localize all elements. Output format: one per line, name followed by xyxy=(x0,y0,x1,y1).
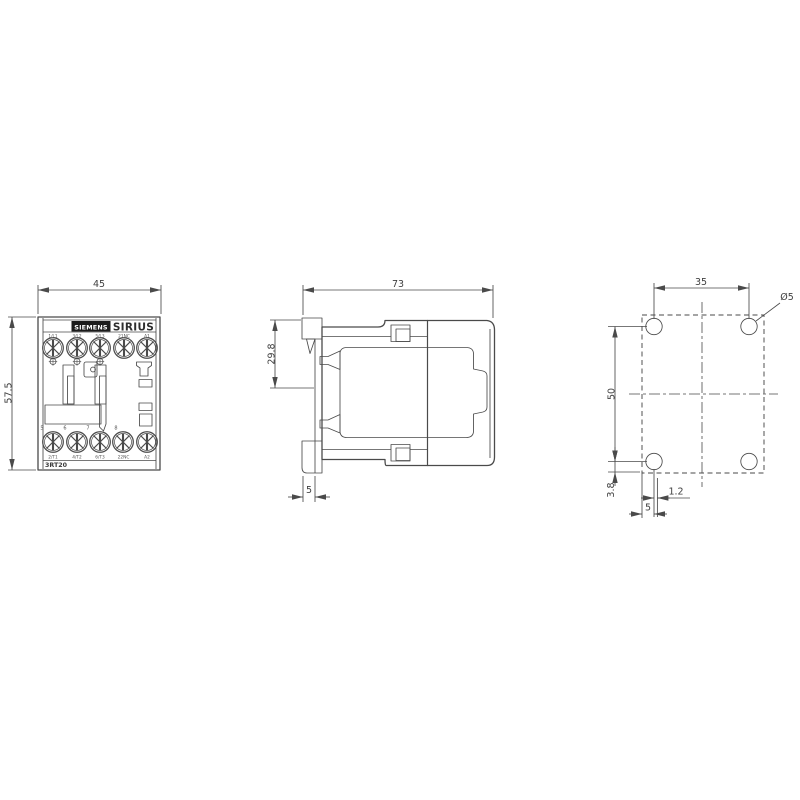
front-height-dimension: 57.5 xyxy=(4,317,37,470)
dim-side-clip: 5 xyxy=(306,485,312,496)
terminal-label: 2/T1 xyxy=(48,455,58,461)
dim-mount-offset: 1.2 xyxy=(668,487,683,498)
mount-vertical-dimension: 50 xyxy=(607,327,648,462)
side-screw-bottom xyxy=(391,445,410,462)
dim-mount-edge-v: 3.8 xyxy=(606,482,617,497)
front-mechanism xyxy=(45,362,152,431)
side-screw-top xyxy=(391,325,410,342)
test-point xyxy=(73,357,81,365)
mounting-hole xyxy=(741,318,757,334)
dim-mount-h: 35 xyxy=(695,277,707,288)
mounting-hole xyxy=(741,453,757,469)
slot-number: 6 xyxy=(63,426,66,432)
top-terminal-labels: 1/L1 3/L2 5/L3 21NC A1 xyxy=(48,334,150,340)
hole-diameter-callout: Ø5 xyxy=(756,292,794,321)
brand-band: SIEMENS SIRIUS xyxy=(43,320,156,334)
din-rail-clip-bottom xyxy=(302,441,322,473)
front-view: 45 57.5 SIEMENS SIRIUS 1/L1 3/L2 5/L3 21… xyxy=(4,279,162,470)
slot-numbers: 5 6 7 8 xyxy=(40,426,117,432)
release-latch xyxy=(320,415,340,434)
terminal-label: 6/T3 xyxy=(95,455,105,461)
dim-front-width: 45 xyxy=(93,279,105,290)
dimension-drawing: 45 57.5 SIEMENS SIRIUS 1/L1 3/L2 5/L3 21… xyxy=(0,0,800,800)
slot-number: 8 xyxy=(114,426,117,432)
release-latch xyxy=(320,351,340,370)
terminal-label: A2 xyxy=(144,455,150,461)
din-rail-clip-top xyxy=(302,318,322,354)
terminal-label: A1 xyxy=(144,334,150,340)
terminal-screw xyxy=(90,432,111,453)
side-inner-contour xyxy=(340,348,487,438)
label-field xyxy=(45,405,101,424)
terminal-screw xyxy=(67,432,88,453)
front-width-dimension: 45 xyxy=(38,279,161,314)
terminal-screw xyxy=(114,338,135,359)
side-depth-dimension: 73 xyxy=(303,279,493,318)
terminal-label: 4/T2 xyxy=(72,455,82,461)
side-clip-dimension: 5 xyxy=(288,476,330,502)
dim-mount-v: 50 xyxy=(607,388,618,400)
side-rail-dimension: 29.8 xyxy=(267,320,315,388)
dim-side-depth: 73 xyxy=(392,279,404,290)
side-body-outline xyxy=(322,321,495,466)
hole-diameter-label: Ø5 xyxy=(780,292,794,303)
terminal-label: 22NC xyxy=(118,455,130,461)
mounting-hole xyxy=(646,453,662,469)
terminal-screw xyxy=(67,338,88,359)
mounting-view: 35 Ø5 50 3.8 1.2 xyxy=(606,277,794,518)
brand-text: SIEMENS xyxy=(74,323,108,331)
dim-side-rail: 29.8 xyxy=(267,343,278,364)
slot-number: 5 xyxy=(40,426,43,432)
terminal-screw xyxy=(43,432,64,453)
terminal-screw xyxy=(113,432,134,453)
type-code-text: 3RT20 xyxy=(45,462,68,469)
slot-number: 7 xyxy=(86,426,89,432)
terminal-screw xyxy=(90,338,111,359)
terminal-screw xyxy=(137,338,158,359)
terminal-screw xyxy=(43,338,64,359)
mount-offset-dimensions: 3.8 1.2 5 xyxy=(606,447,690,518)
mount-horizontal-dimension: 35 xyxy=(654,277,749,319)
test-point xyxy=(49,357,57,365)
side-view: 73 29.8 5 xyxy=(267,279,495,502)
dim-front-height: 57.5 xyxy=(4,382,15,403)
bottom-terminal-labels: 2/T1 4/T2 6/T3 22NC A2 xyxy=(48,455,150,461)
dim-mount-edge-h: 5 xyxy=(645,503,651,514)
terminal-screw xyxy=(137,432,158,453)
mounting-hole xyxy=(646,318,662,334)
series-text: SIRIUS xyxy=(113,322,154,334)
